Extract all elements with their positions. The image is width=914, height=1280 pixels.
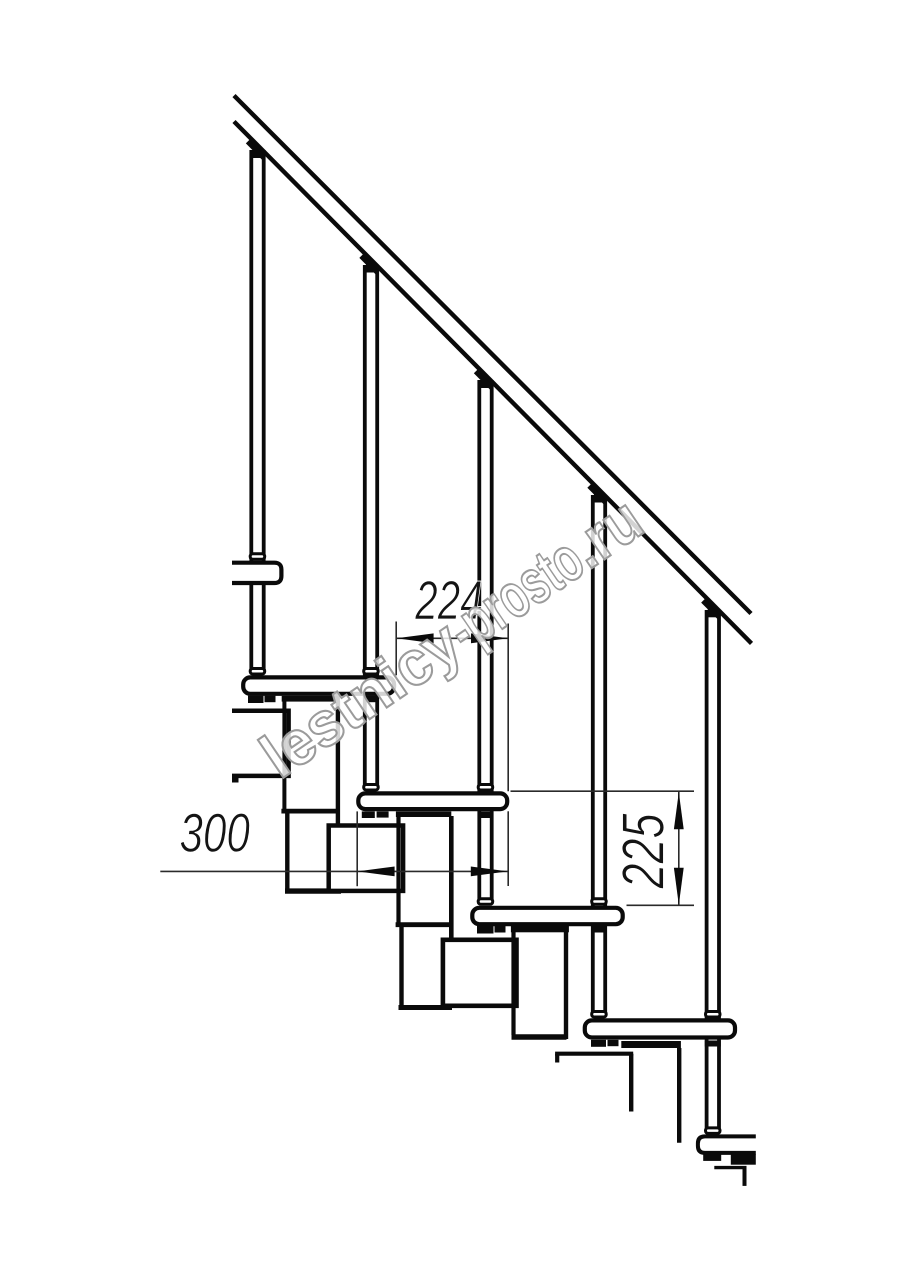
svg-text:300: 300 (179, 802, 250, 864)
svg-text:225: 225 (611, 813, 677, 889)
